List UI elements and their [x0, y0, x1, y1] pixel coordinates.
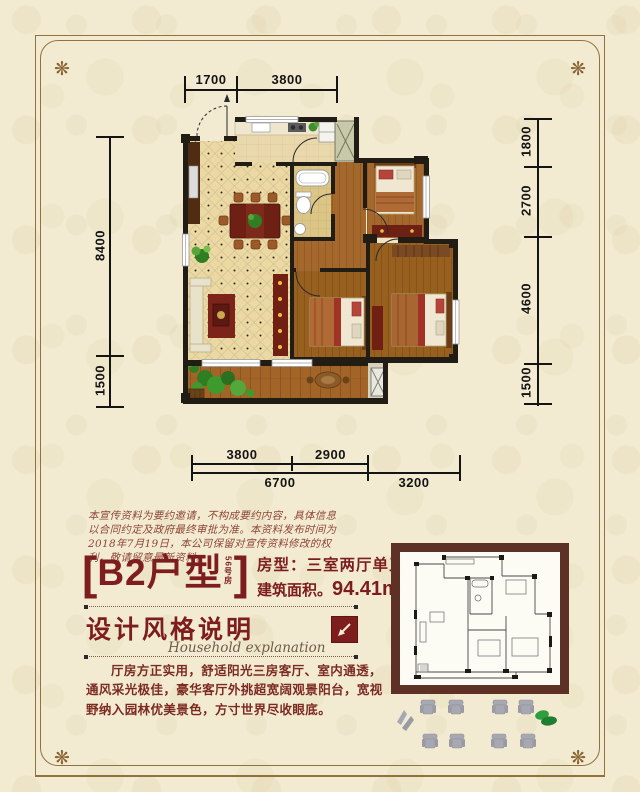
chair-icon	[420, 732, 440, 752]
flyer-page: ❋ ❋ ❋ ❋ 1700 3800 8400 1500 1800 2700 46…	[0, 0, 640, 792]
area-prefix: 建筑面积。	[257, 582, 332, 599]
dim-label: 1700	[185, 72, 237, 87]
chair-icon	[516, 698, 536, 718]
chair-icon	[518, 732, 538, 752]
design-body-text: 厅房方正实用，舒适阳光三房客厅、室内通透，通风采光极佳，豪华客厅外挑超宽阔观景阳…	[86, 662, 384, 720]
floor-plan-graphic	[150, 92, 482, 406]
design-heading-english: Household explanation	[168, 640, 326, 656]
room-type: 房型：三室两厅单卫	[257, 553, 406, 575]
corner-flower-icon: ❋	[570, 60, 586, 79]
chair-icon	[446, 698, 466, 718]
mini-floor-plan-graphic	[400, 552, 560, 685]
bracket-open: [	[82, 552, 97, 596]
dim-label: 2700	[519, 171, 534, 231]
dim-label: 2900	[292, 447, 369, 462]
dimension-tick	[524, 236, 552, 238]
divider	[86, 656, 356, 657]
dimension-line	[192, 463, 369, 465]
swoosh-icon	[394, 708, 418, 732]
chair-icon	[447, 732, 467, 752]
dim-label: 4600	[519, 269, 534, 329]
divider	[86, 606, 356, 607]
mini-floor-plan	[391, 543, 569, 694]
decor-icon-cluster	[390, 694, 560, 754]
corner-flower-icon: ❋	[54, 749, 70, 768]
unit-title: [ B2户型 56号房 ] 房型：三室两厅单卫 建筑面积。94.41m2	[82, 552, 405, 601]
unit-name: B2户型	[97, 552, 222, 595]
dim-label: 6700	[192, 475, 368, 490]
dimension-line	[192, 472, 461, 474]
corner-flower-icon: ❋	[54, 60, 70, 79]
dim-label: 3800	[237, 72, 337, 87]
chair-icon	[418, 698, 438, 718]
plant-icon	[534, 708, 558, 728]
corner-flower-icon: ❋	[570, 749, 586, 768]
diagonal-arrow-icon	[331, 616, 358, 643]
dim-label: 1500	[93, 351, 108, 411]
dimension-line	[109, 137, 111, 408]
dim-label: 1500	[519, 353, 534, 413]
chair-icon	[490, 698, 510, 718]
dim-label: 3200	[368, 475, 460, 490]
dim-label: 3800	[192, 447, 292, 462]
area-line: 建筑面积。94.41m2	[257, 578, 406, 601]
dimension-tick	[96, 136, 124, 138]
chair-icon	[489, 732, 509, 752]
unit-details: 房型：三室两厅单卫 建筑面积。94.41m2	[257, 552, 406, 601]
dimension-line	[185, 89, 338, 91]
area-value: 94.41m	[332, 578, 400, 600]
dim-label: 1800	[519, 112, 534, 172]
bracket-close: ]	[234, 552, 249, 596]
dim-label: 8400	[93, 216, 108, 276]
unit-sub-label: 56号房	[223, 556, 234, 590]
